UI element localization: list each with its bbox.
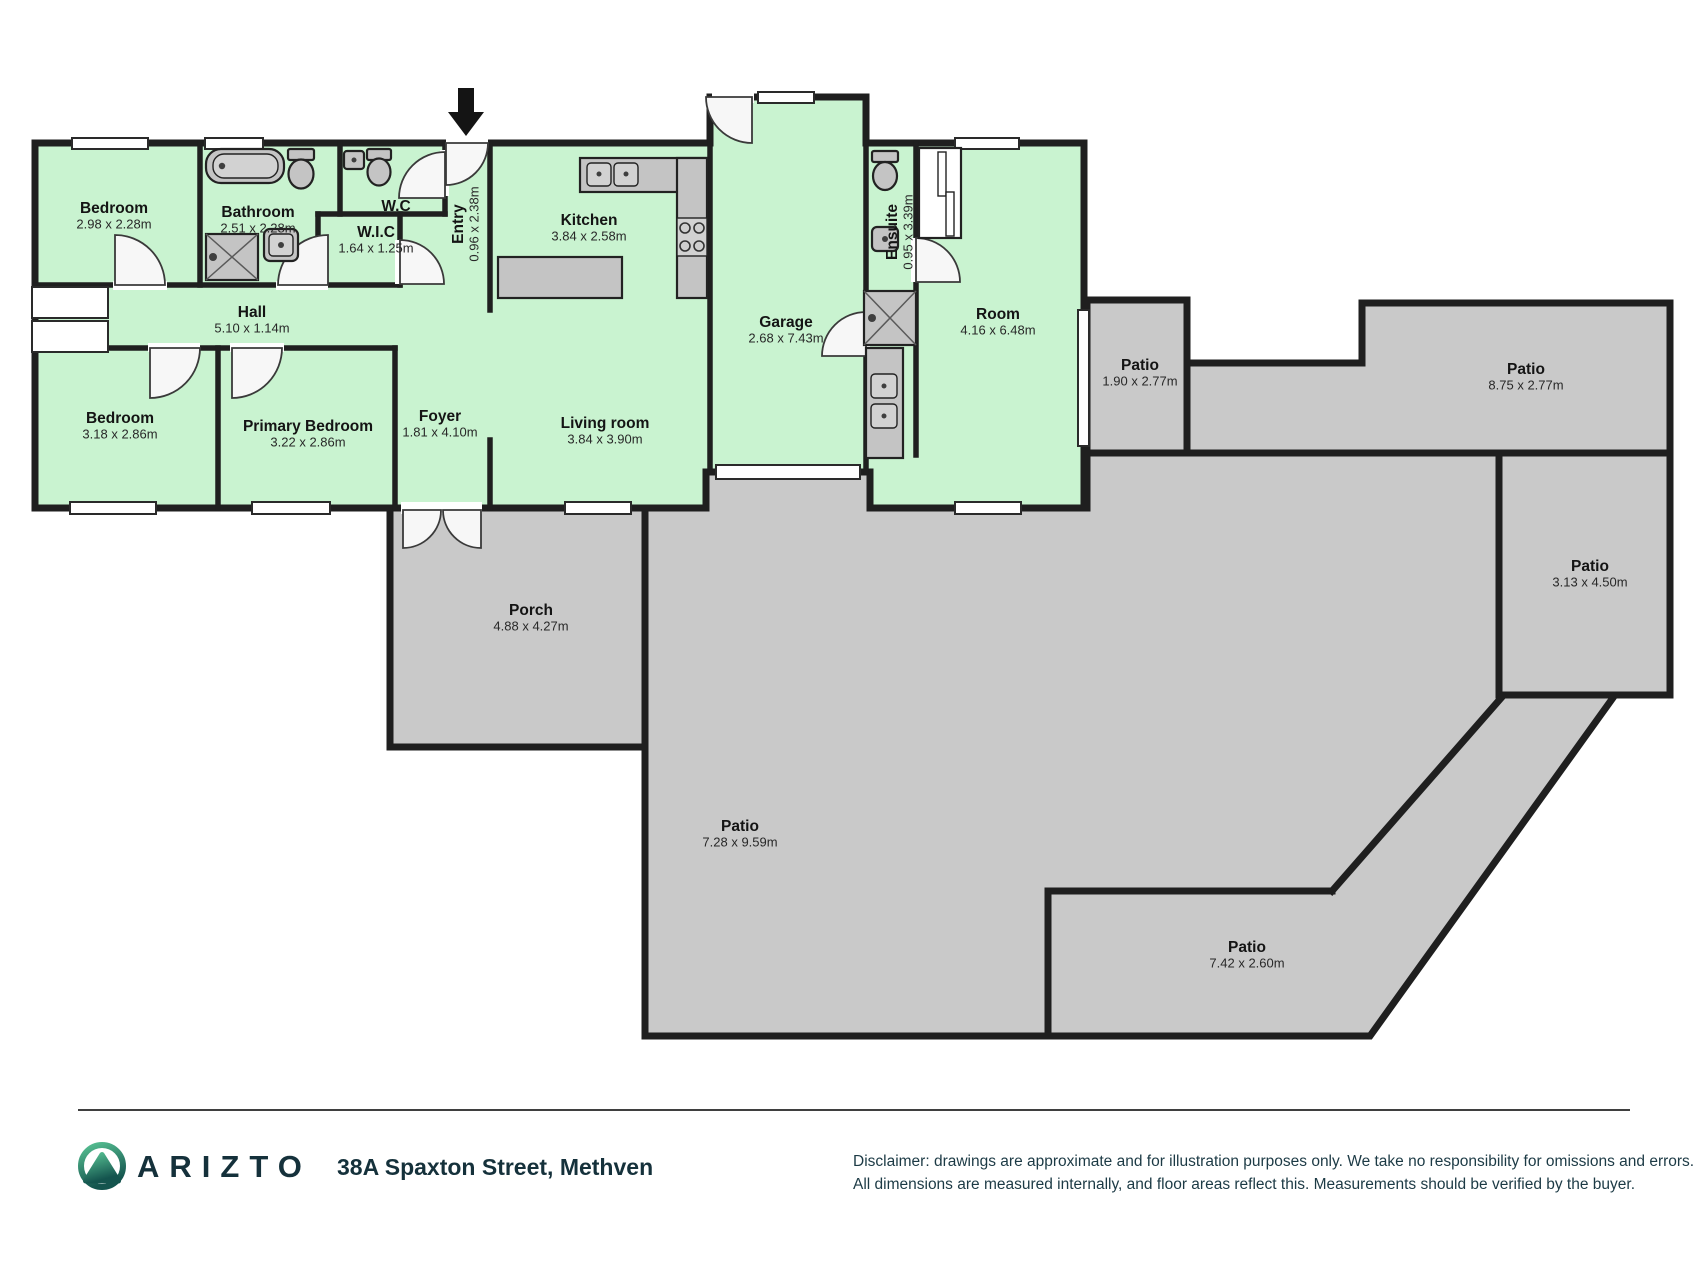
- room-dims: 4.16 x 6.48m: [960, 323, 1035, 338]
- room-label-ensuite: Ensuite0.95 x 3.39m: [884, 194, 916, 269]
- garage-door-icon: [716, 465, 860, 479]
- room-name: Bathroom: [221, 204, 294, 221]
- disclaimer-line-2: All dimensions are measured internally, …: [853, 1176, 1635, 1193]
- room-label-bedroom-1: Bedroom2.98 x 2.28m: [76, 200, 151, 232]
- disclaimer-line-1: Disclaimer: drawings are approximate and…: [853, 1153, 1694, 1170]
- room-name: Ensuite: [884, 204, 901, 260]
- window-icon: [1078, 310, 1089, 446]
- window-icon: [205, 138, 263, 149]
- window-icon: [955, 502, 1021, 514]
- room-label-wc: W.C: [381, 198, 410, 215]
- room-dims: 3.84 x 3.90m: [567, 432, 642, 447]
- room-dims: 1.90 x 2.77m: [1102, 374, 1177, 389]
- room-dims: 3.22 x 2.86m: [270, 435, 345, 450]
- room-name: W.C: [381, 198, 410, 215]
- room-dims: 8.75 x 2.77m: [1488, 378, 1563, 393]
- room-name: Room: [976, 306, 1020, 323]
- floor-plan: Bedroom2.98 x 2.28mBathroom2.51 x 2.28mW…: [0, 0, 1707, 1280]
- room-dims: 2.51 x 2.28m: [220, 221, 295, 236]
- room-label-bathroom: Bathroom2.51 x 2.28m: [220, 204, 295, 236]
- window-icon: [70, 502, 156, 514]
- sink-icon: [344, 151, 364, 169]
- shower-icon: [864, 291, 916, 345]
- closet-icon: [919, 148, 961, 238]
- room-name: Foyer: [419, 408, 461, 425]
- room-dims: 3.84 x 2.58m: [551, 229, 626, 244]
- laundry-sink-icon: [866, 348, 903, 458]
- window-icon: [72, 138, 148, 149]
- room-name: Patio: [1571, 558, 1609, 575]
- property-address: 38A Spaxton Street, Methven: [337, 1154, 653, 1180]
- window-icon: [955, 138, 1019, 149]
- room-label-kitchen: Kitchen3.84 x 2.58m: [551, 212, 626, 244]
- room-name: Bedroom: [86, 410, 154, 427]
- room-dims: 1.64 x 1.25m: [338, 241, 413, 256]
- room-dims: 1.81 x 4.10m: [402, 425, 477, 440]
- stove-icon: [677, 218, 707, 256]
- bay-window-icon: [32, 287, 108, 318]
- house: [32, 92, 1089, 548]
- room-name: Patio: [1507, 361, 1545, 378]
- room-dims: 3.18 x 2.86m: [82, 427, 157, 442]
- window-icon: [252, 502, 330, 514]
- room-name: Entry: [450, 204, 467, 244]
- room-dims: 5.10 x 1.14m: [214, 321, 289, 336]
- room-name: Garage: [759, 314, 813, 331]
- room-name: Bedroom: [80, 200, 148, 217]
- room-dims: 0.95 x 3.39m: [901, 194, 916, 269]
- room-name: Porch: [509, 602, 553, 619]
- room-label-garage: Garage2.68 x 7.43m: [748, 314, 823, 346]
- room-name: Patio: [1121, 357, 1159, 374]
- room-name: Hall: [238, 304, 266, 321]
- room-label-bedroom-2: Bedroom3.18 x 2.86m: [82, 410, 157, 442]
- room-dims: 7.42 x 2.60m: [1209, 956, 1284, 971]
- room-dims: 2.98 x 2.28m: [76, 217, 151, 232]
- room-dims: 0.96 x 2.38m: [467, 186, 482, 261]
- room-name: W.I.C: [357, 224, 395, 241]
- brand-wordmark: ARIZTO: [137, 1149, 312, 1184]
- room-label-living-room: Living room3.84 x 3.90m: [561, 415, 650, 447]
- toilet-icon: [367, 149, 391, 186]
- floor-plan-page: Bedroom2.98 x 2.28mBathroom2.51 x 2.28mW…: [0, 0, 1707, 1280]
- footer: ARIZTO 38A Spaxton Street, Methven Discl…: [78, 1110, 1694, 1193]
- arizto-logo: [81, 1145, 123, 1187]
- room-name: Kitchen: [561, 212, 618, 229]
- room-dims: 7.28 x 9.59m: [702, 835, 777, 850]
- bay-window-icon: [32, 321, 108, 352]
- room-name: Primary Bedroom: [243, 418, 373, 435]
- window-icon: [565, 502, 631, 514]
- room-name: Patio: [721, 818, 759, 835]
- entry-arrow-icon: [448, 88, 484, 136]
- shower-icon: [206, 234, 258, 280]
- bathtub-icon: [206, 149, 284, 183]
- window-icon: [758, 92, 814, 103]
- room-dims: 2.68 x 7.43m: [748, 331, 823, 346]
- room-dims: 4.88 x 4.27m: [493, 619, 568, 634]
- room-name: Living room: [561, 415, 650, 432]
- room-dims: 3.13 x 4.50m: [1552, 575, 1627, 590]
- room-name: Patio: [1228, 939, 1266, 956]
- toilet-icon: [872, 151, 898, 190]
- toilet-icon: [288, 149, 314, 189]
